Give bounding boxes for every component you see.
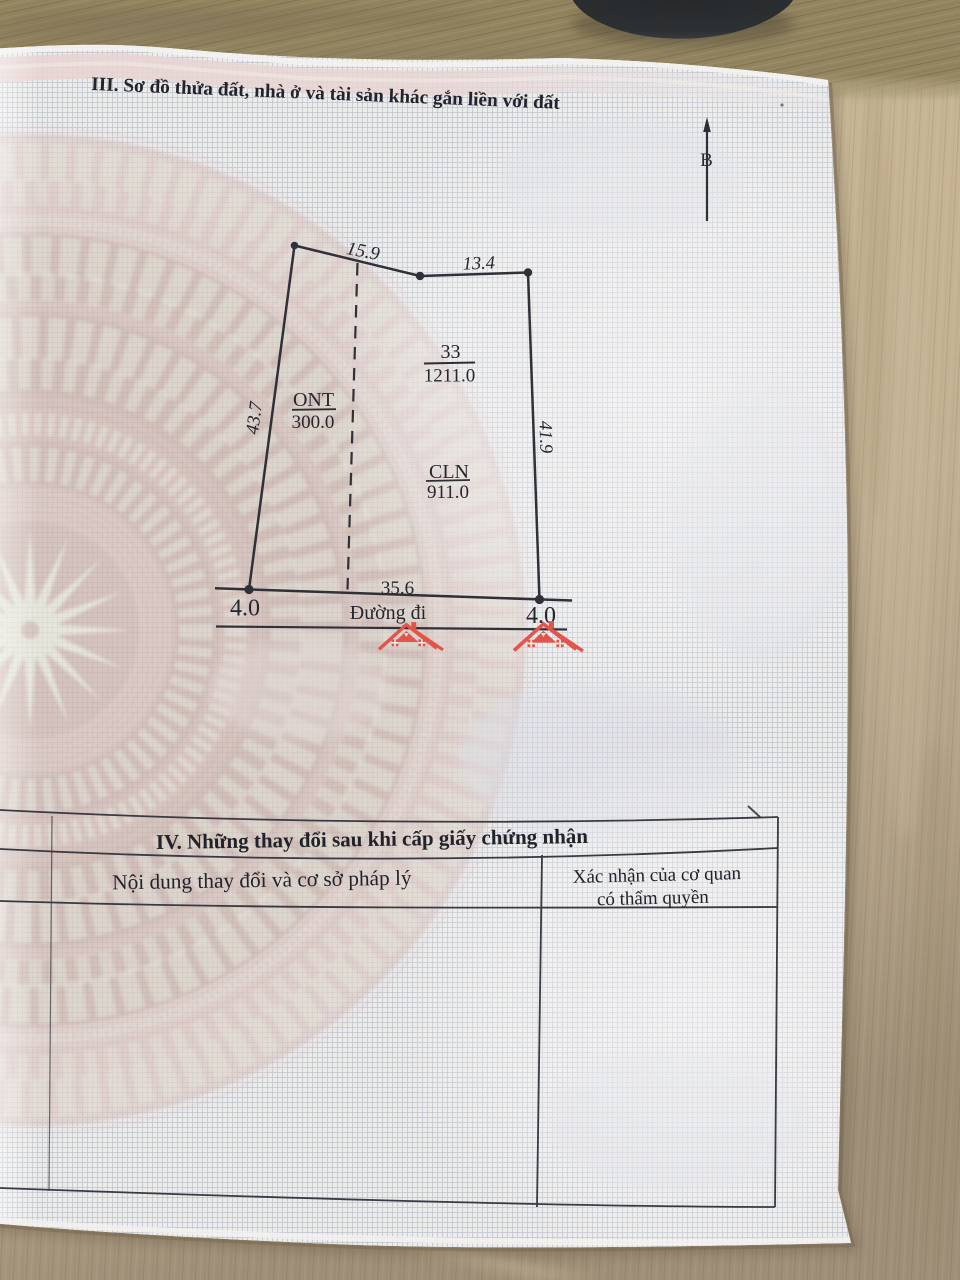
svg-text:Nội dung thay đổi và cơ sở phá: Nội dung thay đổi và cơ sở pháp lý — [112, 866, 412, 895]
svg-text:1211.0: 1211.0 — [424, 366, 476, 387]
svg-text:33: 33 — [441, 341, 461, 363]
svg-text:911.0: 911.0 — [427, 482, 469, 503]
svg-text:B: B — [700, 150, 713, 171]
svg-text:4.0: 4.0 — [230, 596, 260, 622]
svg-text:Xác nhận của cơ quan: Xác nhận của cơ quan — [573, 863, 742, 888]
svg-text:41.9: 41.9 — [534, 421, 555, 454]
svg-text:13.4: 13.4 — [462, 253, 495, 274]
svg-text:300.0: 300.0 — [292, 412, 335, 433]
svg-text:có thẩm quyền: có thẩm quyền — [597, 887, 710, 911]
svg-text:35.6: 35.6 — [381, 578, 414, 599]
svg-text:Đường đi: Đường đi — [350, 602, 427, 624]
svg-text:ONT: ONT — [293, 389, 334, 411]
